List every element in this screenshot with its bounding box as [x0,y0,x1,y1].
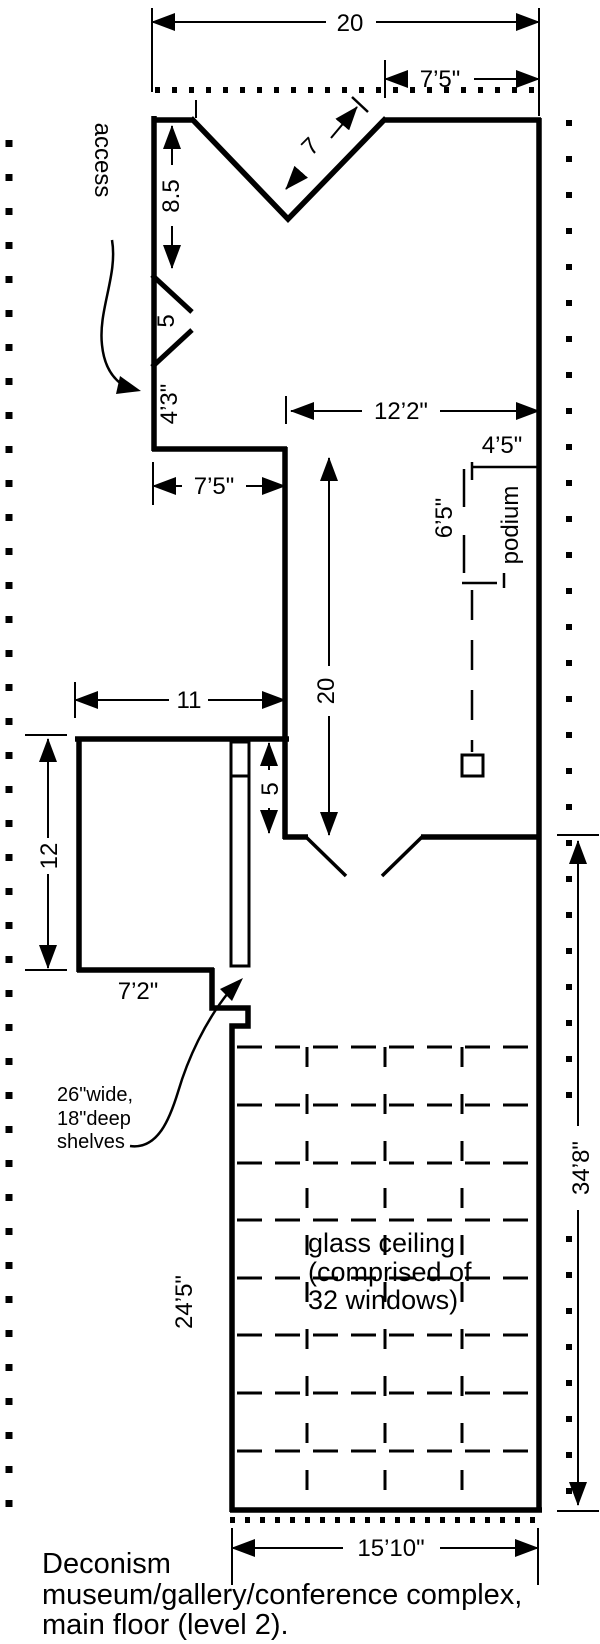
break-diagonal-lower [152,330,192,367]
dim-storeroom-height: 12 [36,843,63,870]
access-leader-arrowhead [116,376,141,394]
access-leader-line [101,240,128,388]
dim-wall-lower: 4’3" [156,384,183,425]
dim-hall-upper-width: 12’2" [374,398,428,425]
access-label: access [89,123,116,198]
shelves-note-line1: 26"wide, [57,1084,133,1106]
break-diagonal-upper [152,275,192,312]
door-diagonal-right [382,836,423,876]
dim-alcove-width: 7’5" [194,473,235,500]
dim-bottom-width: 15’10" [357,1535,424,1562]
glass-ceiling-label-line2: (comprised of [308,1257,472,1287]
dimension-lines [25,8,599,1585]
leader-lines [101,240,228,1146]
caption-line3: main floor (level 2). [42,1609,289,1641]
caption-line1: Deconism [42,1548,171,1580]
dotted-boundary [9,90,569,1524]
caption-line2: museum/gallery/conference complex, [42,1579,522,1611]
shelves-leader-line [130,993,228,1146]
dim-storeroom-width: 11 [177,687,202,714]
podium-label: podium [497,486,524,565]
dim-right-overall: 34’8" [568,1141,595,1195]
dim-top-right-offset: 7’5" [420,66,461,93]
shelves-unit [231,742,249,966]
floor-plan-figure: 20 7’5" 7 8.5 5 4’3" 12’2" 7’5" 20 4’5" … [0,0,600,1644]
door-diagonal-left [306,837,346,876]
dim-storeroom-bottom: 7’2" [118,978,159,1005]
wall-top-notched [152,118,541,219]
floor-plan-drawing: 20 7’5" 7 8.5 5 4’3" 12’2" 7’5" 20 4’5" … [0,0,600,1644]
shelves-note-line2: 18"deep [57,1108,131,1130]
dim-podium-from-wall: 4’5" [482,432,523,459]
dim-overall-top-width: 20 [337,10,364,37]
glass-ceiling-label-line3: 32 windows) [308,1285,458,1315]
figure-caption: Deconism museum/gallery/conference compl… [42,1548,522,1641]
dim-podium-length: 6’5" [431,498,458,539]
door-swing-lines [306,836,423,876]
glass-ceiling-label-line1: glass ceiling [308,1228,455,1258]
dim-passage-width: 5 [257,782,284,795]
annotation-texts: access podium 26"wide, 18"deep shelves g… [57,123,524,1315]
wall-storeroom [75,737,289,972]
dim-glass-left-wall: 24’5" [171,1275,198,1329]
wall-step-and-glass-left [212,968,248,1512]
dimension-texts: 20 7’5" 7 8.5 5 4’3" 12’2" 7’5" 20 4’5" … [36,10,595,1562]
dim-notch-side: 7 [296,132,325,161]
dim-access-width: 5 [153,314,180,327]
dim-hall-length: 20 [313,678,340,705]
shelves-note-line3: shelves [57,1131,125,1153]
dim-wall-upper: 8.5 [158,179,185,212]
podium-square [462,755,483,776]
